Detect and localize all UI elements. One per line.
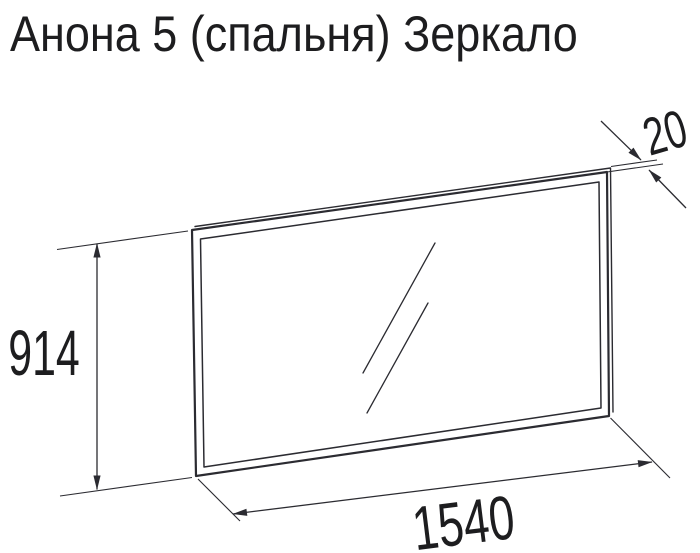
- depth-dimension-value: 20: [636, 98, 693, 167]
- mirror-body: [192, 168, 613, 476]
- width-extension-line-right: [611, 418, 671, 478]
- mirror-diagram: 914 1540 20: [0, 0, 700, 553]
- mirror-inner-frame: [201, 182, 602, 467]
- height-extension-line-bottom: [60, 478, 192, 497]
- depth-dimension: 20: [601, 98, 694, 208]
- depth-leader-line-upper: [601, 121, 641, 160]
- mirror-back-edge: [195, 168, 613, 412]
- width-extension-line-left: [198, 479, 240, 521]
- height-extension-line-top: [57, 231, 188, 250]
- mirror-reflection-line-1: [363, 243, 435, 373]
- height-dimension-value: 914: [8, 317, 80, 389]
- height-dimension: 914: [8, 231, 192, 496]
- width-dimension-value: 1540: [409, 482, 519, 553]
- mirror-reflection-line-2: [367, 303, 428, 413]
- width-dimension: 1540: [198, 418, 670, 553]
- depth-leader-line-lower: [649, 170, 686, 208]
- technical-drawing: Анона 5 (спальня) Зеркало 914: [0, 0, 700, 553]
